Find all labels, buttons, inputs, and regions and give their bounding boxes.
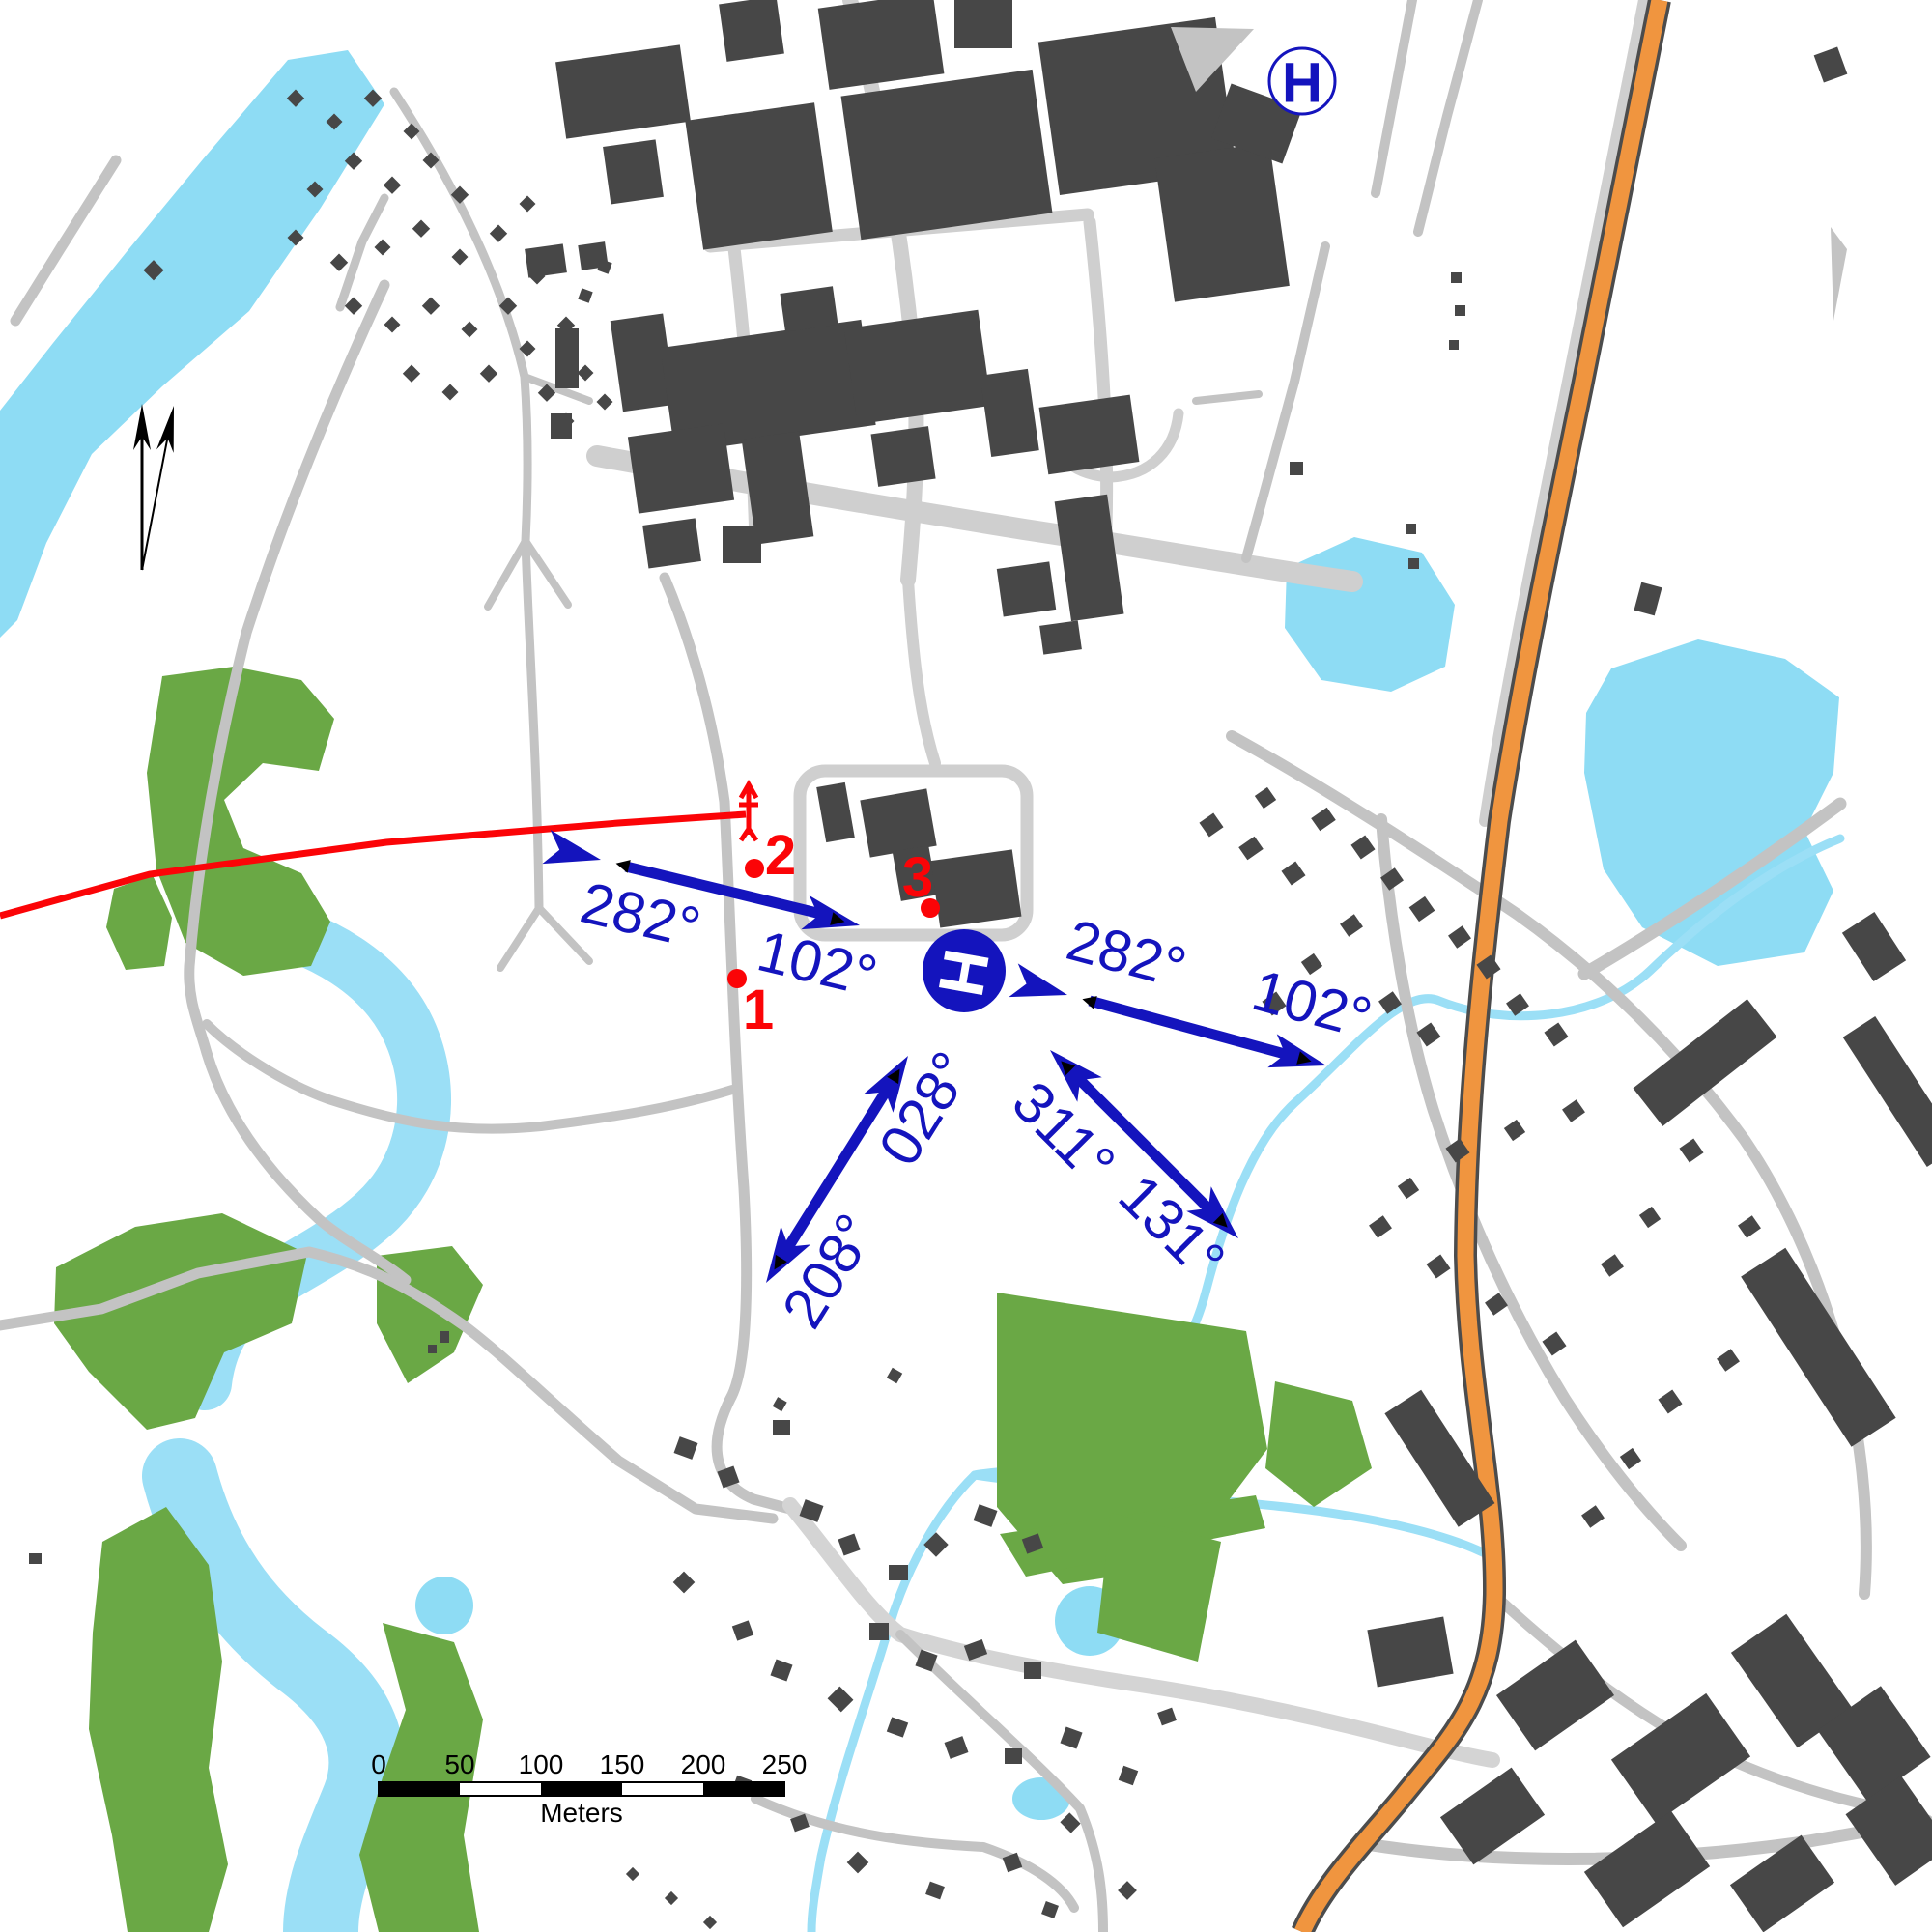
building <box>597 394 613 411</box>
building <box>442 384 459 401</box>
building <box>384 177 401 194</box>
building <box>841 70 1053 240</box>
building <box>1658 1389 1682 1413</box>
building <box>428 1345 437 1353</box>
building <box>412 220 430 238</box>
building <box>838 1533 860 1555</box>
building <box>816 782 855 842</box>
building <box>703 1916 717 1929</box>
building <box>685 102 832 249</box>
building <box>1451 272 1462 283</box>
building <box>887 1717 908 1737</box>
building <box>1041 1901 1059 1918</box>
building <box>525 243 567 277</box>
building <box>330 254 348 271</box>
map-canvas[interactable]: 2 1 3 282° 102° 282° 102° 028° 208° 311°… <box>0 0 1932 1932</box>
building <box>1340 914 1363 936</box>
road <box>1196 394 1259 401</box>
survey-point-1-label: 1 <box>743 979 774 1041</box>
building <box>869 1623 889 1640</box>
road <box>394 92 539 908</box>
building <box>1118 1881 1137 1900</box>
building <box>555 328 579 388</box>
building <box>1199 812 1223 837</box>
river-northwest <box>0 50 384 638</box>
building <box>462 322 478 338</box>
building <box>1601 1254 1624 1276</box>
bearing-label-208: 208° <box>770 1203 889 1339</box>
building <box>1504 1120 1525 1141</box>
building <box>945 1736 969 1759</box>
building <box>555 44 691 138</box>
building <box>1634 582 1662 616</box>
building <box>1634 999 1777 1126</box>
vegetation-patch <box>106 875 172 970</box>
building <box>1717 1349 1740 1371</box>
hospital-symbol[interactable]: H <box>1269 48 1335 115</box>
building <box>773 1420 790 1435</box>
building <box>780 286 838 331</box>
building <box>578 288 592 302</box>
building <box>818 0 945 90</box>
building <box>732 1620 753 1640</box>
building <box>628 423 734 513</box>
road <box>1246 246 1325 558</box>
building <box>1449 340 1459 350</box>
road <box>207 1024 732 1129</box>
bearing-label-311: 311° <box>1000 1069 1127 1197</box>
lake-east <box>1285 537 1455 692</box>
building <box>1367 1617 1453 1688</box>
building <box>1842 912 1906 981</box>
building <box>1639 1207 1661 1228</box>
building <box>452 249 469 266</box>
building <box>403 365 420 383</box>
scale-tick-200: 200 <box>681 1749 726 1779</box>
building <box>1350 835 1375 859</box>
building <box>1455 305 1465 316</box>
building <box>384 317 401 333</box>
building <box>770 1659 792 1681</box>
topographic-map[interactable]: 2 1 3 282° 102° 282° 102° 028° 208° 311°… <box>0 0 1932 1932</box>
bearing-label-131: 131° <box>1107 1162 1237 1293</box>
building <box>1496 1640 1614 1751</box>
helipad-symbol[interactable]: H <box>923 929 1006 1012</box>
building <box>1846 1776 1932 1886</box>
north-arrow <box>133 404 183 570</box>
building <box>1024 1662 1041 1679</box>
building <box>1238 837 1264 861</box>
building <box>1611 1693 1750 1823</box>
building <box>1620 1448 1641 1469</box>
road <box>500 908 539 968</box>
road <box>908 580 935 763</box>
building <box>29 1553 42 1564</box>
building <box>1039 395 1140 475</box>
building <box>719 0 784 62</box>
road <box>665 578 790 1509</box>
building <box>954 0 1012 48</box>
vegetation-patch <box>54 1213 307 1430</box>
building <box>997 561 1056 616</box>
building <box>1738 1215 1761 1237</box>
building <box>422 298 440 315</box>
building <box>1255 787 1276 809</box>
scale-tick-250: 250 <box>762 1749 808 1779</box>
building <box>1406 524 1416 534</box>
road <box>488 541 526 607</box>
building <box>642 518 701 568</box>
road <box>1376 0 1412 193</box>
hospital-h-icon: H <box>1282 52 1322 115</box>
building <box>887 1368 902 1383</box>
building <box>931 849 1022 927</box>
building <box>1119 1766 1139 1786</box>
building <box>925 1882 945 1900</box>
building <box>1005 1748 1022 1764</box>
building <box>345 298 362 315</box>
scale-tick-50: 50 <box>444 1749 474 1779</box>
building <box>844 310 992 425</box>
building <box>1584 1811 1710 1927</box>
building <box>1157 1708 1177 1726</box>
building <box>626 1867 639 1881</box>
building <box>1679 1138 1703 1162</box>
building <box>375 240 391 256</box>
vegetation-patch <box>89 1507 228 1932</box>
building <box>1544 1022 1568 1046</box>
building <box>673 1572 696 1594</box>
building <box>1843 1016 1932 1167</box>
vegetation-areas <box>54 667 1372 1932</box>
clearing-wedge-righted <box>1831 227 1847 321</box>
building <box>1581 1505 1605 1527</box>
building <box>1281 861 1305 885</box>
building <box>1542 1331 1566 1355</box>
survey-point-2-dot[interactable] <box>745 859 764 878</box>
building <box>828 1687 854 1713</box>
building <box>520 196 536 213</box>
survey-point-3-label: 3 <box>902 846 933 909</box>
building <box>1060 1726 1082 1748</box>
building <box>1039 620 1082 654</box>
building <box>674 1436 698 1460</box>
vegetation-patch <box>1265 1381 1372 1507</box>
pond-small-west <box>415 1577 473 1634</box>
building <box>1060 1812 1080 1833</box>
building <box>665 1891 678 1905</box>
building <box>871 426 936 487</box>
road <box>1418 0 1478 232</box>
building <box>980 369 1038 457</box>
scale-tick-150: 150 <box>600 1749 645 1779</box>
building <box>578 365 594 382</box>
building <box>1398 1178 1419 1199</box>
survey-point-2-label: 2 <box>765 824 796 887</box>
building <box>889 1565 908 1580</box>
bearing-label-028: 028° <box>867 1040 985 1177</box>
building <box>773 1397 787 1411</box>
building <box>1814 46 1848 82</box>
building <box>1369 1215 1392 1237</box>
building <box>603 139 664 204</box>
building <box>1154 142 1290 301</box>
building <box>1055 495 1124 621</box>
residential-area-east <box>1199 787 1932 1932</box>
scale-tick-0: 0 <box>371 1749 386 1779</box>
building <box>974 1504 998 1527</box>
building <box>1311 808 1336 832</box>
building <box>1290 462 1303 475</box>
building <box>723 526 761 563</box>
building <box>490 225 507 242</box>
building <box>1408 558 1419 569</box>
building <box>440 1331 449 1343</box>
vegetation-patch <box>147 667 334 976</box>
bearing-label-282-east: 282° <box>1061 907 1193 1001</box>
scale-tick-100: 100 <box>519 1749 564 1779</box>
bearing-label-102-east: 102° <box>1246 957 1378 1051</box>
building <box>1409 896 1435 922</box>
building <box>1562 1099 1585 1122</box>
building <box>1426 1254 1450 1278</box>
building <box>1448 925 1471 948</box>
building <box>847 1852 869 1874</box>
scale-unit-label: Meters <box>540 1798 623 1828</box>
building <box>480 365 497 383</box>
